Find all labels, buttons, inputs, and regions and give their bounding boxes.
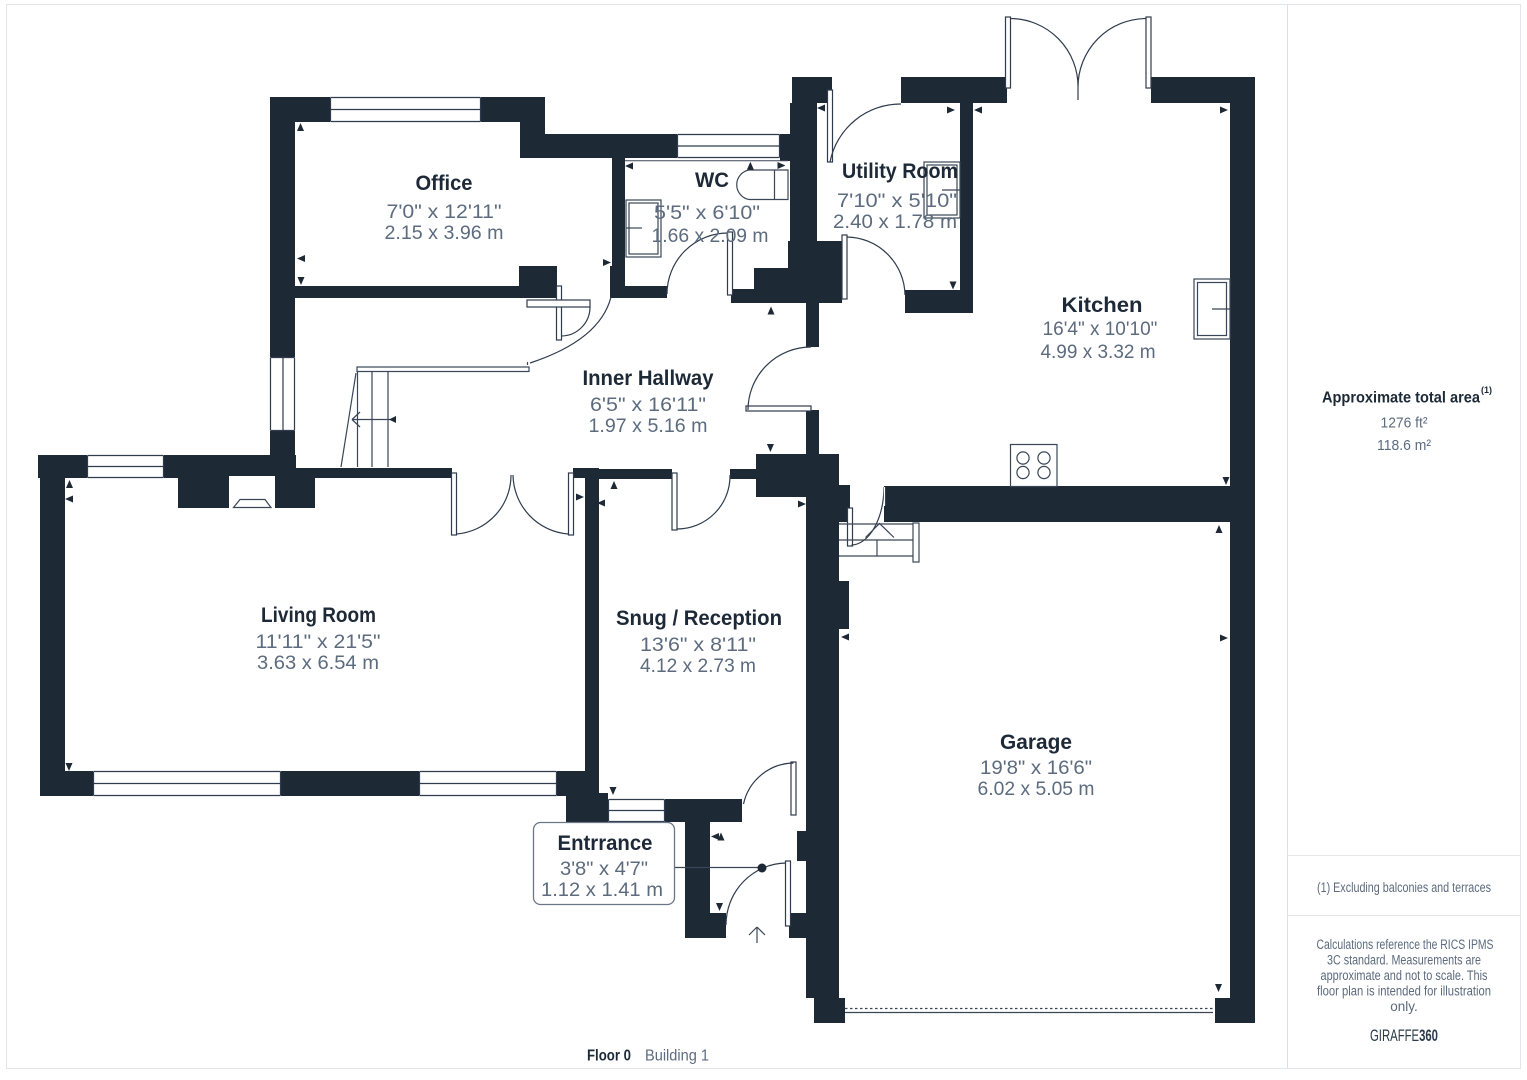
svg-text:5'5" x 6'10": 5'5" x 6'10": [654, 203, 760, 224]
svg-text:(1) Excluding balconies and te: (1) Excluding balconies and terraces: [1317, 880, 1491, 895]
svg-text:3C standard. Measurements are: 3C standard. Measurements are: [1327, 953, 1481, 968]
svg-text:only.: only.: [1390, 999, 1418, 1014]
svg-text:Inner Hallway: Inner Hallway: [583, 366, 714, 390]
svg-text:1.12 x 1.41 m: 1.12 x 1.41 m: [541, 880, 663, 901]
svg-text:1.97 x 5.16 m: 1.97 x 5.16 m: [589, 416, 708, 437]
svg-text:Snug / Reception: Snug / Reception: [616, 606, 782, 630]
svg-text:13'6" x 8'11": 13'6" x 8'11": [640, 635, 756, 656]
svg-text:3.63 x 6.54 m: 3.63 x 6.54 m: [257, 653, 379, 674]
svg-text:approximate and not to scale.: approximate and not to scale. This: [1321, 968, 1488, 983]
svg-text:19'8" x 16'6": 19'8" x 16'6": [980, 758, 1092, 779]
svg-text:4.12 x 2.73 m: 4.12 x 2.73 m: [640, 656, 756, 677]
svg-text:Floor 0: Floor 0: [587, 1048, 631, 1065]
svg-text:Approximate total area: Approximate total area: [1322, 390, 1480, 407]
svg-text:6'5" x 16'11": 6'5" x 16'11": [590, 395, 706, 416]
svg-text:Garage: Garage: [1000, 730, 1072, 754]
svg-text:7'0" x 12'11": 7'0" x 12'11": [387, 202, 502, 223]
svg-text:Calculations reference the RIC: Calculations reference the RICS IPMS: [1317, 937, 1494, 952]
svg-text:1276 ft²: 1276 ft²: [1381, 415, 1428, 432]
svg-text:(1): (1): [1481, 385, 1492, 395]
svg-text:118.6 m²: 118.6 m²: [1377, 437, 1431, 454]
svg-text:2.15 x 3.96 m: 2.15 x 3.96 m: [385, 223, 504, 244]
svg-text:2.40 x 1.78 m: 2.40 x 1.78 m: [833, 212, 957, 233]
svg-text:Utility Room: Utility Room: [842, 159, 958, 183]
svg-text:floor plan is intended for ill: floor plan is intended for illustration: [1317, 984, 1491, 999]
svg-text:7'10" x 5'10": 7'10" x 5'10": [837, 191, 957, 212]
svg-text:Office: Office: [416, 171, 473, 195]
svg-text:Building 1: Building 1: [645, 1048, 709, 1065]
svg-text:3'8" x 4'7": 3'8" x 4'7": [560, 859, 648, 880]
svg-text:6.02 x 5.05 m: 6.02 x 5.05 m: [978, 779, 1095, 800]
svg-text:4.99 x 3.32 m: 4.99 x 3.32 m: [1040, 342, 1155, 363]
svg-text:16'4" x 10'10": 16'4" x 10'10": [1043, 319, 1158, 340]
svg-text:WC: WC: [695, 168, 729, 192]
svg-text:Living Room: Living Room: [261, 603, 376, 627]
svg-text:GIRAFFE360: GIRAFFE360: [1370, 1026, 1438, 1045]
svg-text:1.66 x 2.09 m: 1.66 x 2.09 m: [652, 226, 769, 247]
svg-text:Entrrance: Entrrance: [558, 831, 653, 855]
svg-text:Kitchen: Kitchen: [1062, 293, 1143, 317]
svg-text:11'11" x 21'5": 11'11" x 21'5": [256, 632, 381, 653]
